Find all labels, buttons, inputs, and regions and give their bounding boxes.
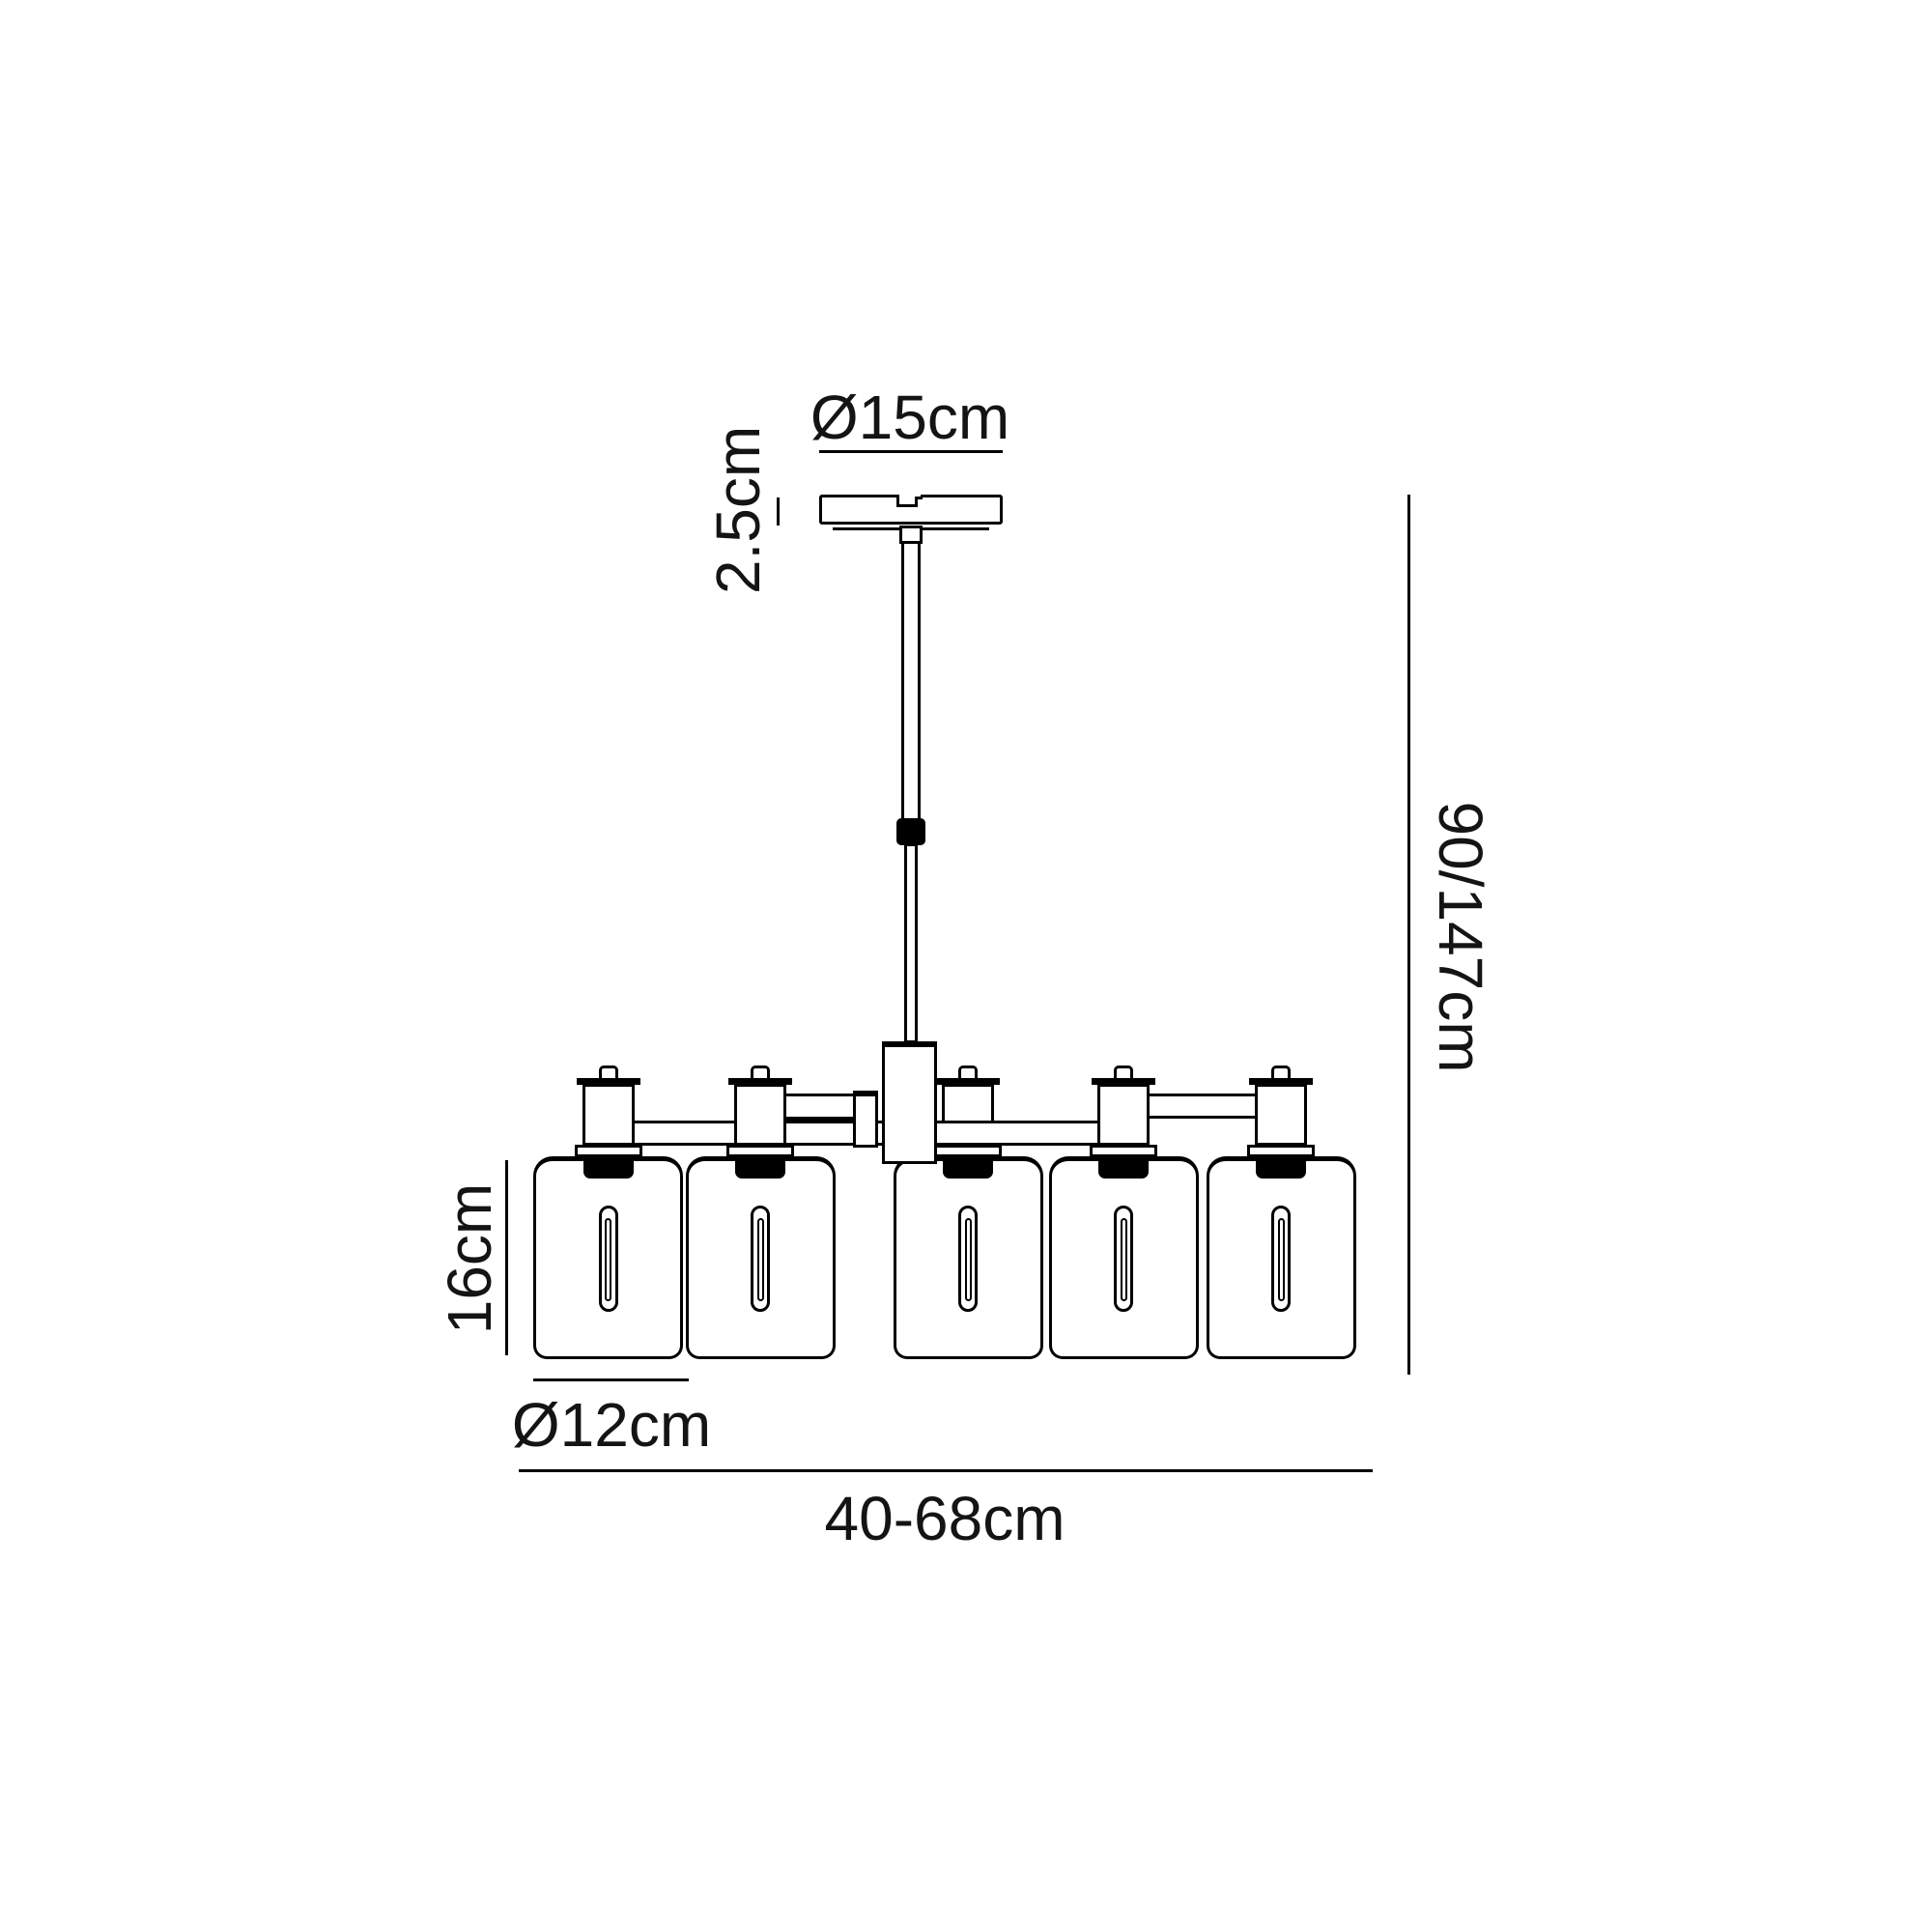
lamp-holder-body bbox=[734, 1084, 786, 1146]
lamp-socket bbox=[1098, 1156, 1149, 1179]
bulb-filament-line bbox=[757, 1218, 764, 1301]
technical-drawing-canvas: Ø15cm 2.5cm 90/147cm 16cm Ø12cm 40-68cm bbox=[0, 0, 1932, 1932]
arm-right-lower bbox=[937, 1121, 1099, 1146]
bulb-filament-line bbox=[1278, 1218, 1285, 1301]
fixture-drawing bbox=[0, 0, 1932, 1932]
center-hub bbox=[882, 1041, 937, 1164]
lamp-holder-flange bbox=[575, 1145, 642, 1157]
lamp-socket bbox=[735, 1156, 785, 1179]
lamp-holder-flange bbox=[1247, 1145, 1315, 1157]
lamp-socket bbox=[1256, 1156, 1306, 1179]
bulb-filament-line bbox=[965, 1218, 972, 1301]
stem-upper bbox=[901, 539, 921, 821]
stem-lower bbox=[904, 843, 918, 1043]
lamp-holder-flange bbox=[1090, 1145, 1157, 1157]
lamp-socket bbox=[583, 1156, 634, 1179]
canopy-slot-top bbox=[915, 497, 923, 499]
lamp-holder-body bbox=[1255, 1084, 1307, 1146]
lamp-holder-flange bbox=[934, 1145, 1002, 1157]
lamp-holder-body bbox=[582, 1084, 635, 1146]
lamp-holder-body bbox=[1097, 1084, 1150, 1146]
lamp-holder-flange bbox=[726, 1145, 794, 1157]
stem-collar bbox=[899, 526, 923, 544]
arm-left-upper bbox=[786, 1094, 854, 1122]
lamp-socket bbox=[943, 1156, 993, 1179]
arm-sleeve bbox=[853, 1091, 878, 1148]
stem-connector bbox=[896, 818, 925, 845]
arm-right-upper bbox=[1150, 1094, 1258, 1119]
bulb-filament-line bbox=[1121, 1218, 1127, 1301]
bulb-filament-line bbox=[605, 1218, 611, 1301]
